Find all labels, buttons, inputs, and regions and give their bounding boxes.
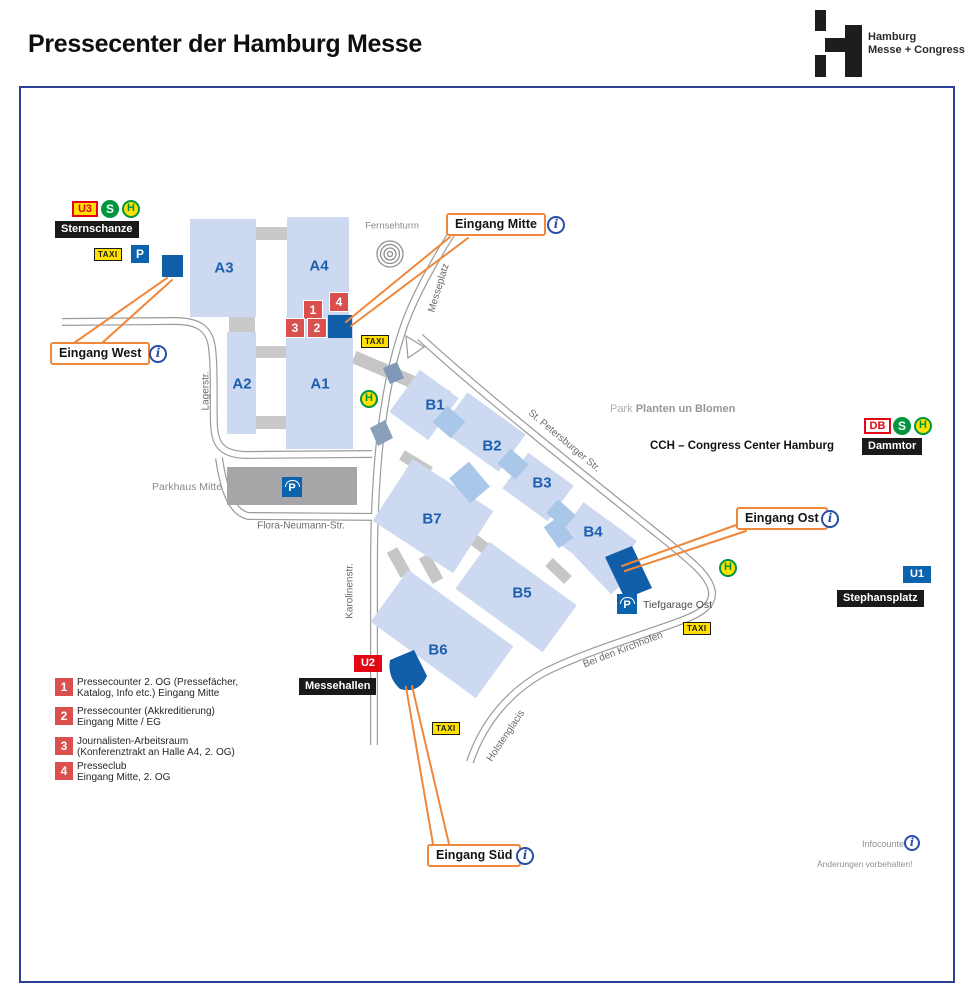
hall-label-b7: B7 bbox=[422, 511, 441, 528]
parkhaus-mitte-label: Parkhaus Mitte bbox=[152, 481, 222, 493]
logo-mark-bar bbox=[825, 38, 846, 52]
station-sternschanze: Sternschanze bbox=[55, 221, 139, 238]
disclaimer-label: Änderungen vorbehalten! bbox=[817, 859, 912, 869]
entrance-mitte-label: Eingang Mitte bbox=[446, 213, 546, 236]
hall-label-a2: A2 bbox=[232, 376, 251, 393]
legend-marker-2: 2 bbox=[55, 707, 73, 725]
station-dammtor: Dammtor bbox=[862, 438, 922, 455]
fernsehturm-label: Fernsehturm bbox=[365, 221, 419, 232]
parking-letter: P bbox=[282, 473, 302, 503]
logo-mark-bar bbox=[845, 25, 862, 77]
hall-label-a1: A1 bbox=[310, 376, 329, 393]
page-title: Pressecenter der Hamburg Messe bbox=[28, 30, 422, 59]
u1-badge: U1 bbox=[903, 566, 931, 583]
legend-text: Katalog, Info etc.) Eingang Mitte bbox=[77, 688, 219, 699]
street-flora-neumann: Flora-Neumann-Str. bbox=[257, 521, 345, 532]
entrance-sued-label: Eingang Süd bbox=[427, 844, 521, 867]
station-messehallen: Messehallen bbox=[299, 678, 376, 695]
info-icon-west: i bbox=[149, 345, 167, 363]
legend-text: Journalisten-Arbeitsraum bbox=[77, 736, 188, 747]
parkhaus-icon: P bbox=[282, 477, 302, 497]
park-planten-label: Park Planten un Blomen bbox=[610, 403, 735, 415]
hall-label-b5: B5 bbox=[512, 585, 531, 602]
taxi-badge: TAXI bbox=[94, 248, 122, 261]
map-marker-2: 2 bbox=[308, 319, 326, 337]
hall-label-b4: B4 bbox=[583, 524, 602, 541]
park-name: Planten un Blomen bbox=[636, 403, 736, 415]
logo-line2: Messe + Congress bbox=[868, 44, 965, 57]
legend-text: (Konferenztrakt an Halle A4, 2. OG) bbox=[77, 747, 235, 758]
tiefgarage-label: Tiefgarage Ost bbox=[643, 599, 712, 611]
bus-stop-icon: H bbox=[914, 417, 932, 435]
tiefgarage-icon: P bbox=[617, 594, 637, 614]
street-lagerstr: Lagerstr. bbox=[201, 372, 212, 411]
info-icon-mitte: i bbox=[547, 216, 565, 234]
legend-marker-1: 1 bbox=[55, 678, 73, 696]
u3-badge: U3 bbox=[72, 201, 98, 217]
parking-letter: P bbox=[617, 590, 637, 620]
legend-marker-3: 3 bbox=[55, 737, 73, 755]
station-stephansplatz: Stephansplatz bbox=[837, 590, 924, 607]
park-prefix: Park bbox=[610, 403, 633, 415]
hall-label-b1: B1 bbox=[425, 397, 444, 414]
map-marker-4: 4 bbox=[330, 293, 348, 311]
info-icon-footer: i bbox=[904, 835, 920, 851]
parking-icon: P bbox=[131, 245, 149, 263]
logo-text: Hamburg Messe + Congress bbox=[868, 31, 965, 57]
legend-text: Pressecounter 2. OG (Pressefächer, bbox=[77, 677, 238, 688]
map-marker-1: 1 bbox=[304, 301, 322, 319]
hall-label-a3: A3 bbox=[214, 260, 233, 277]
hall-label-b2: B2 bbox=[482, 438, 501, 455]
street-karolinenstr: Karolinenstr. bbox=[345, 563, 356, 619]
entrance-ost-label: Eingang Ost bbox=[736, 507, 828, 530]
taxi-badge: TAXI bbox=[432, 722, 460, 735]
hall-label-a4: A4 bbox=[309, 258, 328, 275]
info-icon-ost: i bbox=[821, 510, 839, 528]
legend-text: Pressecounter (Akkreditierung) bbox=[77, 706, 215, 717]
u2-badge: U2 bbox=[354, 655, 382, 672]
legend-marker-4: 4 bbox=[55, 762, 73, 780]
legend-text: Eingang Mitte, 2. OG bbox=[77, 772, 170, 783]
logo-line1: Hamburg bbox=[868, 31, 965, 44]
taxi-badge: TAXI bbox=[361, 335, 389, 348]
bus-stop-icon: H bbox=[719, 559, 737, 577]
legend-text: Presseclub bbox=[77, 761, 126, 772]
hall-label-b3: B3 bbox=[532, 475, 551, 492]
hall-label-b6: B6 bbox=[428, 642, 447, 659]
sbahn-icon: S bbox=[101, 200, 119, 218]
taxi-badge: TAXI bbox=[683, 622, 711, 635]
db-badge: DB bbox=[864, 418, 891, 434]
press-center-map-page: Pressecenter der Hamburg Messe Hamburg M… bbox=[0, 0, 976, 1000]
infocounter-label: Infocounter bbox=[862, 839, 907, 849]
logo-mark-bar bbox=[815, 55, 826, 77]
entrance-west-label: Eingang West bbox=[50, 342, 150, 365]
map-marker-3: 3 bbox=[286, 319, 304, 337]
cch-label: CCH – Congress Center Hamburg bbox=[650, 440, 834, 452]
logo-mark-bar bbox=[815, 10, 826, 31]
bus-stop-icon: H bbox=[360, 390, 378, 408]
legend-text: Eingang Mitte / EG bbox=[77, 717, 161, 728]
sbahn-icon: S bbox=[893, 417, 911, 435]
info-icon-sued: i bbox=[516, 847, 534, 865]
bus-stop-icon: H bbox=[122, 200, 140, 218]
